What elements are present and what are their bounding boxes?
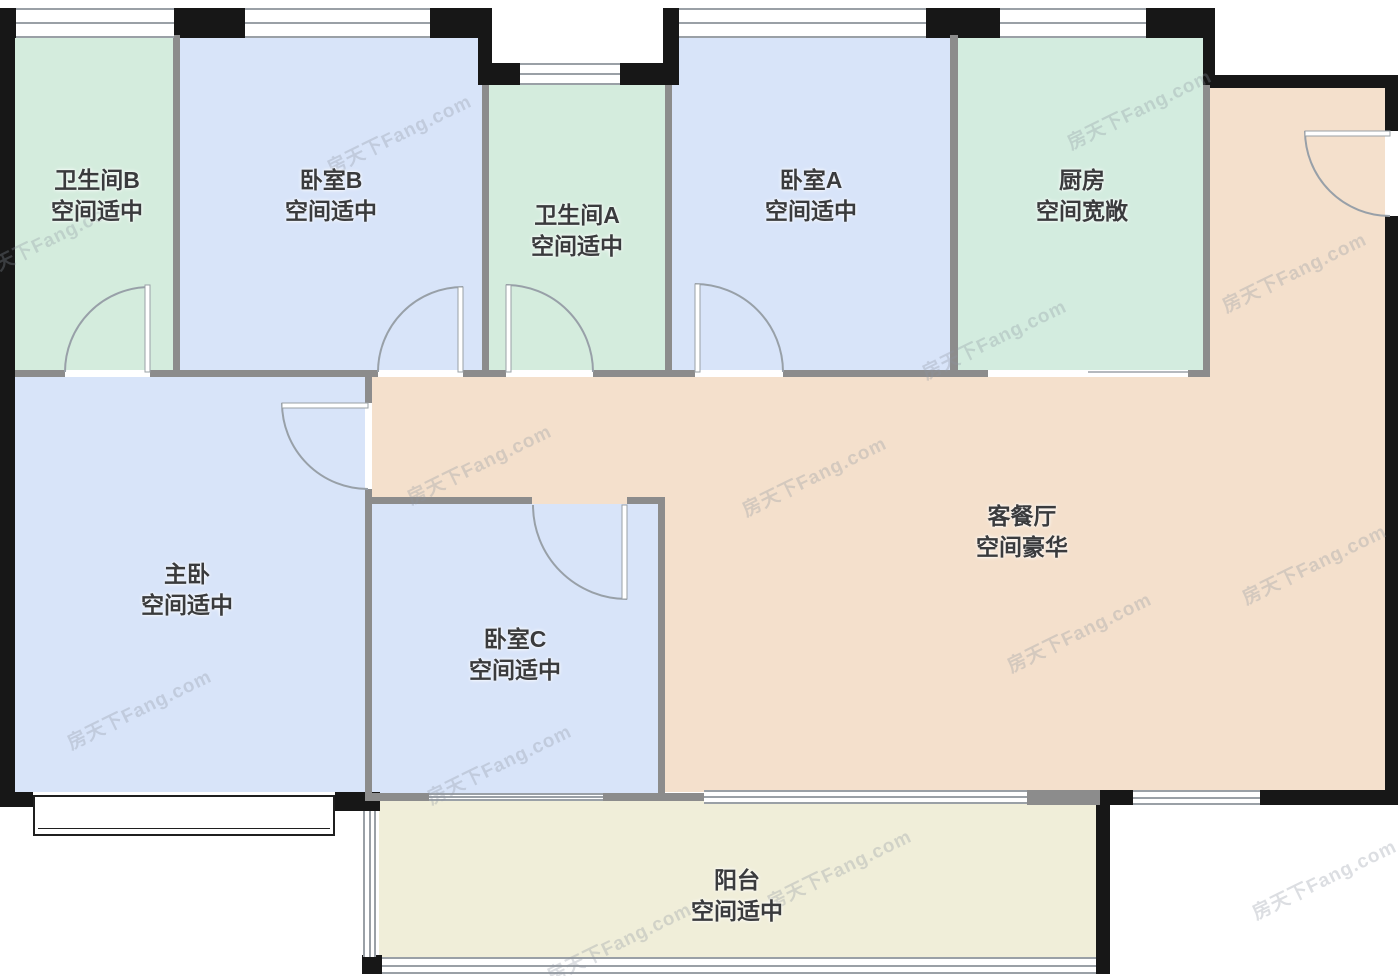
- bay-window-master: [33, 795, 335, 836]
- wall-right-lower: [1385, 216, 1398, 805]
- room-name: 客餐厅: [976, 501, 1068, 532]
- room-label-balcony: 阳台 空间适中: [691, 865, 783, 927]
- floor-plan-canvas: 房天下Fang.com 房天下Fang.com 房天下Fang.com 房天下F…: [0, 0, 1400, 976]
- window-kitchen: [1000, 8, 1146, 38]
- wall-batha-beda: [665, 85, 672, 377]
- wall-top-a: [174, 8, 245, 38]
- wall-living-bottom-a: [1098, 790, 1133, 805]
- room-label-bedroom-c: 卧室C 空间适中: [469, 624, 561, 686]
- room-status: 空间适中: [765, 196, 857, 227]
- room-name: 主卧: [141, 559, 233, 590]
- sliding-door-living-balcony: [704, 790, 1027, 804]
- window-living-bottom: [1133, 790, 1260, 805]
- room-status: 空间适中: [691, 896, 783, 927]
- wall-bedc-top-a: [365, 497, 532, 504]
- room-living-strip: [1210, 88, 1385, 377]
- wall-h-main-d: [593, 370, 695, 377]
- room-status: 空间豪华: [976, 532, 1068, 563]
- wall-kitchen-right: [1203, 85, 1210, 377]
- room-label-living-dining: 客餐厅 空间豪华: [976, 501, 1068, 563]
- wall-right-upper: [1385, 75, 1398, 131]
- room-name: 卫生间A: [531, 200, 623, 231]
- room-label-bedroom-b: 卧室B 空间适中: [285, 165, 377, 227]
- room-status: 空间适中: [469, 655, 561, 686]
- wall-top-c: [926, 8, 1000, 38]
- room-name: 卫生间B: [51, 165, 143, 196]
- room-status: 空间适中: [285, 196, 377, 227]
- wall-bathb-bedb: [173, 35, 180, 377]
- wall-balcony-corner: [362, 955, 382, 974]
- wall-notch-right: [663, 8, 679, 85]
- wall-left-exterior: [0, 8, 15, 807]
- window-bathroom-a: [520, 63, 620, 85]
- wall-h-main-a: [15, 370, 65, 377]
- wall-master-bottom-left: [0, 792, 33, 807]
- room-status: 空间适中: [141, 590, 233, 621]
- window-bathroom-b: [16, 8, 174, 38]
- room-label-kitchen: 厨房 空间宽敞: [1036, 165, 1128, 227]
- room-status: 空间适中: [531, 231, 623, 262]
- room-label-bathroom-b: 卫生间B 空间适中: [51, 165, 143, 227]
- wall-beda-kitchen: [950, 35, 958, 377]
- wall-living-bottom-b: [1260, 790, 1398, 805]
- room-name: 阳台: [691, 865, 783, 896]
- kitchen-threshold-line: [1088, 371, 1188, 373]
- wall-balcony-right: [1096, 793, 1110, 974]
- room-name: 卧室A: [765, 165, 857, 196]
- room-label-bedroom-a: 卧室A 空间适中: [765, 165, 857, 227]
- room-status: 空间宽敞: [1036, 196, 1128, 227]
- wall-master-right-a: [365, 377, 372, 403]
- room-name: 卧室C: [469, 624, 561, 655]
- window-bedroom-c: [429, 793, 603, 801]
- watermark-text: 房天下Fang.com: [1247, 832, 1400, 925]
- wall-h-main-b: [150, 370, 378, 377]
- wall-living-top: [1203, 75, 1398, 88]
- room-label-master-bedroom: 主卧 空间适中: [141, 559, 233, 621]
- room-name: 卧室B: [285, 165, 377, 196]
- window-balcony-left: [363, 811, 376, 957]
- wall-balcony-top-stub: [1027, 790, 1100, 805]
- wall-master-right-b: [365, 489, 372, 793]
- window-bedroom-a: [679, 8, 926, 38]
- wall-bedc-right: [658, 497, 665, 793]
- room-name: 厨房: [1036, 165, 1128, 196]
- window-bedroom-b: [245, 8, 430, 38]
- window-balcony-bottom: [382, 957, 1096, 974]
- wall-bedb-batha: [482, 85, 489, 377]
- room-label-bathroom-a: 卫生间A 空间适中: [531, 200, 623, 262]
- room-status: 空间适中: [51, 196, 143, 227]
